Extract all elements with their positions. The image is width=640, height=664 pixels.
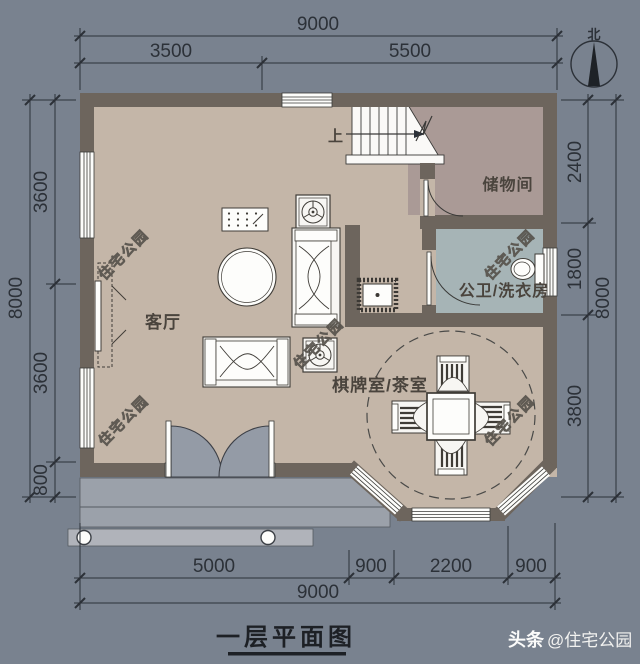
dim-right-seg2: 3800 — [565, 385, 586, 427]
dim-right-seg0: 2400 — [565, 141, 586, 183]
porch-column — [77, 531, 91, 545]
chair-top — [437, 356, 469, 392]
laundry-sink — [359, 280, 396, 310]
window-bay-bottom — [412, 508, 490, 521]
chair-left — [392, 401, 428, 433]
storage-bottom-wall — [420, 215, 557, 229]
dim-bottom-seg1: 900 — [355, 556, 387, 577]
porch-column-strip — [68, 529, 313, 546]
dim-left-seg1: 3600 — [31, 352, 52, 394]
round-rug — [218, 248, 276, 306]
sofa-horizontal — [203, 337, 290, 387]
storage-wall-stub — [420, 163, 435, 179]
door-mat — [222, 208, 268, 231]
footer: 一层平面图 头条 @住宅公园 — [216, 624, 632, 656]
bath-bottom-wall — [345, 313, 557, 327]
dim-left-total: 8000 — [6, 277, 27, 319]
dim-bottom-seg3: 900 — [515, 556, 547, 577]
compass-needle — [588, 42, 600, 86]
dim-left-seg2: 800 — [31, 464, 52, 496]
door-leaf-left — [166, 421, 171, 477]
label-tea-room: 棋牌室/茶室 — [332, 375, 428, 395]
hall-l-wall-vertical — [345, 225, 360, 327]
page-title: 一层平面图 — [216, 624, 356, 651]
window-left-lower — [80, 368, 94, 448]
dim-bottom-total: 9000 — [297, 582, 339, 603]
dim-bottom-seg2: 2200 — [430, 556, 472, 577]
porch-column — [261, 531, 275, 545]
label-storage-room: 储物间 — [481, 175, 533, 194]
dim-left-seg0: 3600 — [31, 171, 52, 213]
side-table-top — [296, 195, 330, 229]
dim-right-total: 8000 — [593, 277, 614, 319]
dim-right-seg1: 1800 — [565, 248, 586, 290]
chair-bottom — [435, 439, 467, 475]
label-bathroom: 公卫/洗衣房 — [459, 281, 549, 300]
stair-landing — [346, 155, 444, 164]
credit-brand: 头条 — [508, 629, 545, 650]
dim-top-seg0: 3500 — [150, 41, 192, 62]
door-leaf-right — [269, 421, 274, 477]
tea-table — [427, 393, 475, 440]
dim-bottom-seg0: 5000 — [193, 556, 235, 577]
label-living-room: 客厅 — [144, 312, 181, 332]
window-left-upper — [80, 152, 94, 238]
window-top — [282, 93, 332, 107]
bath-left-wall-upper — [422, 229, 436, 250]
dim-top-seg1: 5500 — [389, 41, 431, 62]
wall-bottom-mid — [275, 463, 353, 477]
tv-screen — [95, 281, 101, 351]
floor-plan-drawing: 客厅 储物间 公卫/洗衣房 棋牌室/茶室 上 — [0, 0, 640, 664]
porch-slab — [80, 478, 390, 527]
wall-bottom-left — [80, 463, 165, 477]
entry-porch — [68, 478, 390, 546]
north-arrow: 北 — [571, 27, 617, 87]
bath-left-wall-lower — [422, 305, 436, 313]
label-stairs-up: 上 — [328, 128, 344, 145]
title-underline — [228, 652, 346, 656]
sofa-vertical — [292, 228, 340, 327]
floor-plan-screenshot: 客厅 储物间 公卫/洗衣房 棋牌室/茶室 上 — [0, 0, 640, 664]
dim-top-total: 9000 — [297, 14, 339, 35]
credit-handle: @住宅公园 — [547, 631, 632, 650]
north-label: 北 — [587, 27, 600, 42]
